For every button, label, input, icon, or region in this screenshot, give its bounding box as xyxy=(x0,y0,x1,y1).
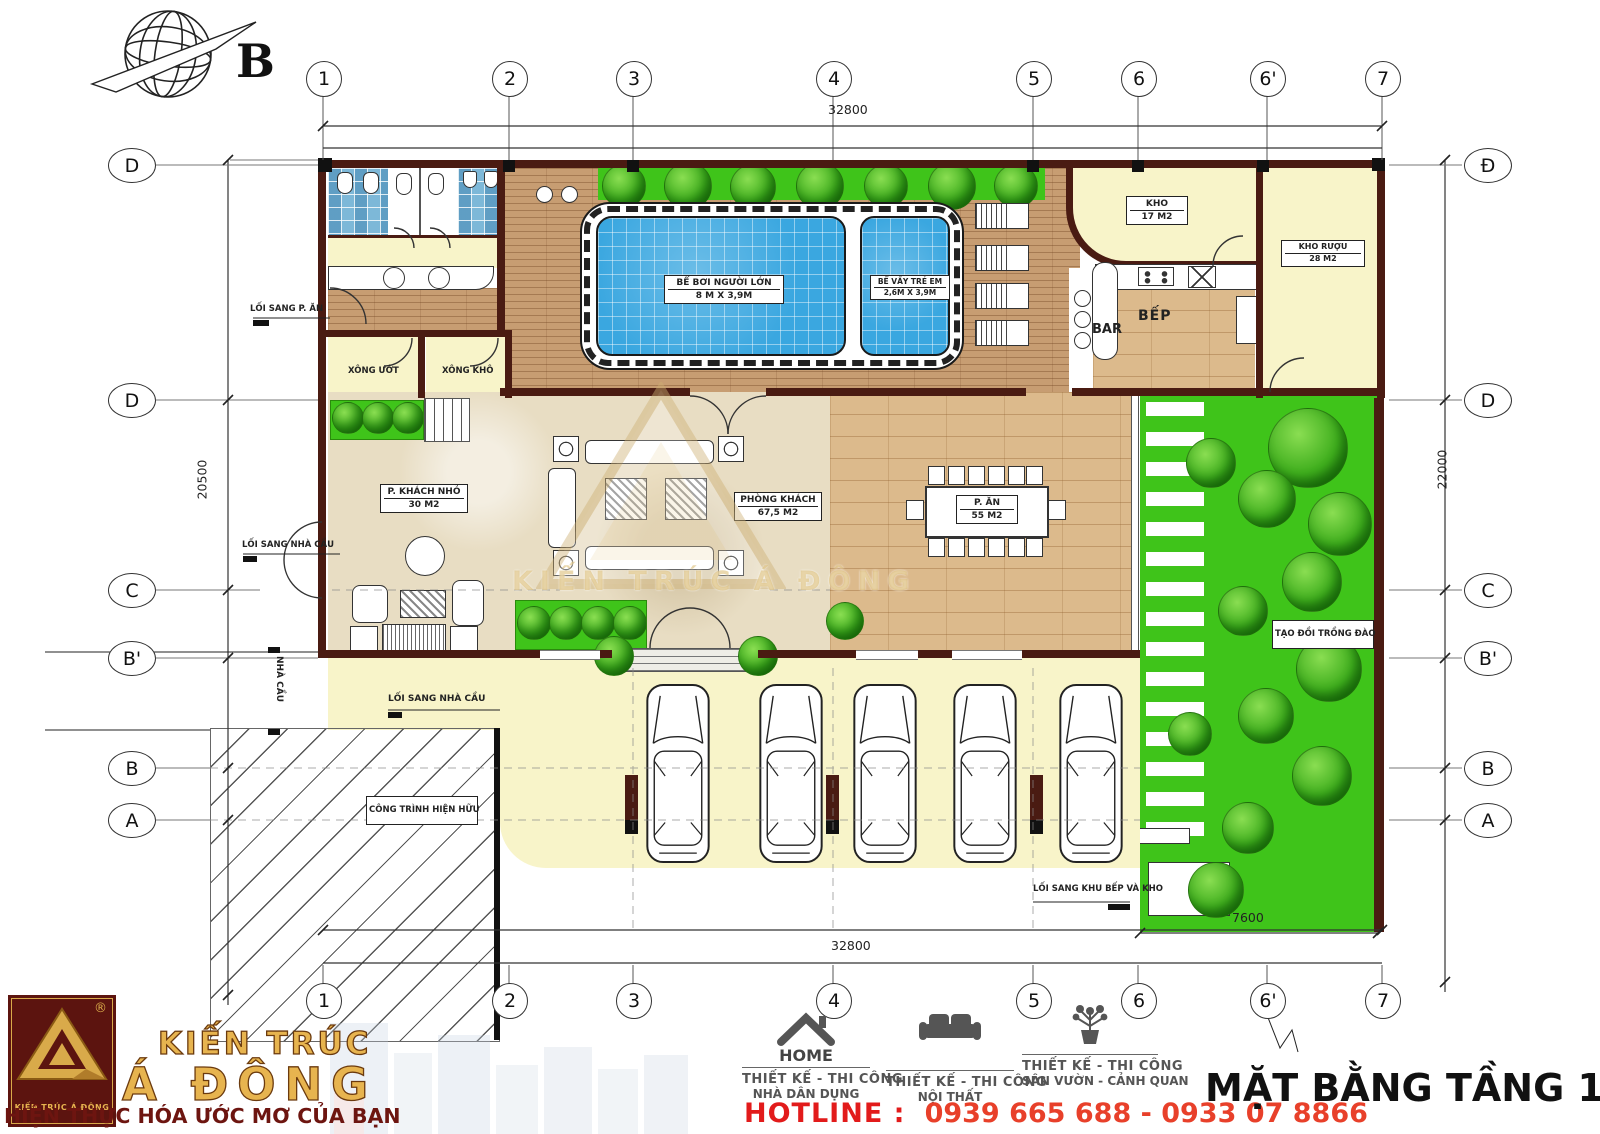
dining-chair xyxy=(906,500,924,520)
stairs xyxy=(424,398,470,442)
label-size: 55 M2 xyxy=(960,509,1014,522)
label-bep: BẾP xyxy=(1138,308,1172,324)
sun-lounger xyxy=(975,320,1029,346)
wc-stall-divider xyxy=(419,168,421,238)
floor-plan-canvas: BỂ BƠI NGƯỜI LỚN 8 M X 3,9M BỂ VẦY TRẺ E… xyxy=(0,0,1600,1134)
plant-icon xyxy=(1067,1002,1113,1048)
car-top-view xyxy=(1058,682,1124,865)
toilet-icon xyxy=(337,172,353,194)
dim-bottom-32800: 32800 xyxy=(828,938,874,953)
brand-slogan: HIỆN THỰC HÓA ƯỚC MƠ CỦA BẠN xyxy=(4,1104,401,1128)
label-kids-pool: BỂ VẦY TRẺ EM 2,6M X 3,9M xyxy=(870,275,950,300)
dining-chair xyxy=(1048,500,1066,520)
stove-icon xyxy=(1138,267,1174,286)
grid-col-7-bottom: 7 xyxy=(1365,983,1401,1019)
sink-icon xyxy=(428,267,450,289)
dining-chair xyxy=(1008,538,1025,557)
grid-row-Bp-left: B' xyxy=(108,641,156,676)
column-stub xyxy=(1257,160,1269,172)
window xyxy=(540,650,600,660)
car-top-view xyxy=(852,682,918,865)
label-text: BỂ BƠI NGƯỜI LỚN xyxy=(668,277,780,289)
brand-triangle-icon xyxy=(12,1003,112,1091)
car-top-view xyxy=(758,682,824,865)
armchair xyxy=(452,580,484,626)
column-stub xyxy=(627,160,639,172)
bar-stool xyxy=(1074,332,1091,349)
car-icon xyxy=(645,682,711,865)
service-interior: THIẾT KẾ - THI CÔNG NỘI THẤT xyxy=(886,1008,1014,1104)
bar-stool xyxy=(1074,290,1091,307)
planter-bush xyxy=(332,402,364,434)
dining-south-bush xyxy=(826,602,864,640)
dining-chair xyxy=(968,538,985,557)
service-divider xyxy=(742,1067,870,1068)
wall-wc-east xyxy=(497,168,505,332)
label-kho: KHO 17 M2 xyxy=(1126,196,1188,225)
garden-tree xyxy=(1218,586,1268,636)
wall-deck-living-2 xyxy=(766,388,1026,396)
parking-pillar xyxy=(1030,775,1043,823)
grid-col-6p-bottom: 6' xyxy=(1250,983,1286,1019)
dim-top-32800: 32800 xyxy=(828,102,868,117)
wall-wc-vanity xyxy=(328,235,500,238)
wall-garden-east xyxy=(1374,398,1384,932)
south-planter-bush xyxy=(549,606,583,640)
label-size: 17 M2 xyxy=(1130,210,1184,223)
grid-col-3-top: 3 xyxy=(616,61,652,97)
wall-deck-living-3 xyxy=(1072,388,1384,396)
north-letter: B xyxy=(236,34,275,88)
toilet-icon xyxy=(363,172,379,194)
dining-chair xyxy=(1008,466,1025,485)
label-loi-sang-nha-cau-bottom: LỐI SANG NHÀ CẦU xyxy=(388,694,485,704)
window xyxy=(952,650,1022,660)
service-divider xyxy=(1022,1054,1158,1055)
column-stub xyxy=(1132,160,1144,172)
dining-chair xyxy=(928,466,945,485)
garden-tree xyxy=(1292,746,1352,806)
grid-row-D2-right: D xyxy=(1464,383,1512,418)
sun-lounger xyxy=(975,203,1029,229)
label-size: 8 M X 3,9M xyxy=(668,289,780,302)
parking-pillar-base xyxy=(826,820,839,834)
armchair xyxy=(352,585,388,623)
sun-lounger xyxy=(975,245,1029,271)
column-stub xyxy=(318,158,332,172)
label-text: P. KHÁCH NHỎ xyxy=(384,486,464,498)
grid-col-6-top: 6 xyxy=(1121,61,1157,97)
round-table xyxy=(405,536,445,576)
service-residential: HOME THIẾT KẾ - THI CÔNG NHÀ DÂN DỤNG xyxy=(742,1008,870,1101)
kitchen-sink-icon xyxy=(1188,266,1216,288)
hotline-label: HOTLINE : xyxy=(744,1098,905,1129)
service-title xyxy=(886,1052,1014,1068)
vanity-counter xyxy=(328,266,494,290)
label-text: TẠO ĐỒI TRỒNG ĐÀO xyxy=(1275,629,1371,640)
grid-col-6p-top: 6' xyxy=(1250,61,1286,97)
label-xong-kho: XÔNG KHÔ xyxy=(442,366,493,376)
label-text: KHO xyxy=(1130,198,1184,210)
grid-row-Bp-right: B' xyxy=(1464,641,1512,676)
grid-col-7-top: 7 xyxy=(1365,61,1401,97)
label-nha-cau: NHÀ CẦU xyxy=(274,656,284,728)
service-line1: THIẾT KẾ - THI CÔNG xyxy=(886,1075,1014,1090)
dining-chair xyxy=(1026,466,1043,485)
wc-vanity-floor xyxy=(328,238,505,268)
dining-chair xyxy=(948,538,965,557)
dining-east-window-wall xyxy=(1131,396,1139,650)
label-xong-uot: XÔNG ƯỚT xyxy=(348,366,399,376)
parking-pillar xyxy=(625,775,638,823)
wall-sauna-divider xyxy=(418,337,425,398)
grid-col-2-top: 2 xyxy=(492,61,528,97)
service-title: HOME xyxy=(742,1046,870,1065)
grid-col-5-top: 5 xyxy=(1016,61,1052,97)
garden-tree xyxy=(1282,552,1342,612)
car-top-view xyxy=(952,682,1018,865)
car-top-view xyxy=(645,682,711,865)
grid-row-A-left: A xyxy=(108,803,156,838)
south-planter-bush xyxy=(613,606,647,640)
house-icon xyxy=(775,1008,837,1048)
service-landscape: THIẾT KẾ - THI CÔNG SÂN VƯỜN - CẢNH QUAN xyxy=(1022,1002,1158,1088)
dim-garden-7600: 7600 xyxy=(1232,910,1264,925)
south-planter-bush xyxy=(517,606,551,640)
column-stub xyxy=(1372,158,1385,171)
outdoor-shower xyxy=(536,186,553,203)
label-text: P. ĂN xyxy=(960,497,1014,509)
label-cong-trinh: CÔNG TRÌNH HIỆN HỮU xyxy=(366,796,478,825)
watermark-text: KIẾN TRÚC Á ĐÔNG xyxy=(512,566,916,597)
toilet-icon xyxy=(428,173,444,195)
wall-sauna-top xyxy=(326,330,512,337)
dining-chair xyxy=(948,466,965,485)
grid-row-D1-left: D xyxy=(108,148,156,183)
garden-tree xyxy=(1238,470,1296,528)
grid-row-D1-right: Đ xyxy=(1464,148,1512,183)
label-text: BỂ VẦY TRẺ EM xyxy=(874,277,946,287)
sofa-icon xyxy=(917,1008,983,1048)
label-text: CÔNG TRÌNH HIỆN HỮU xyxy=(369,805,475,816)
brand-line1: KIẾN TRÚC xyxy=(158,1026,371,1062)
garden-tree xyxy=(1308,492,1372,556)
label-size: 28 M2 xyxy=(1285,253,1361,265)
label-bar: BAR xyxy=(1092,322,1122,337)
toilet-icon xyxy=(396,173,412,195)
bar-stool xyxy=(1074,311,1091,328)
kho-ruou-floor xyxy=(1263,168,1377,398)
service-divider xyxy=(886,1070,1014,1071)
grid-col-1-top: 1 xyxy=(306,61,342,97)
existing-building-area xyxy=(210,728,500,1042)
column-stub xyxy=(1027,160,1039,172)
garden-tree xyxy=(1186,438,1236,488)
dim-left-20500: 20500 xyxy=(195,450,210,510)
south-planter-bush xyxy=(581,606,615,640)
dining-chair xyxy=(988,538,1005,557)
wall-south-living-2 xyxy=(758,650,1140,658)
label-tao-doi: TẠO ĐỒI TRỒNG ĐÀO xyxy=(1272,620,1374,649)
planter-bush xyxy=(362,402,394,434)
garden-slab xyxy=(1136,828,1190,844)
label-loi-sang-p-an: LỐI SANG P. ĂN xyxy=(250,304,323,314)
garden-tree xyxy=(1168,712,1212,756)
service-line1: THIẾT KẾ - THI CÔNG xyxy=(742,1072,870,1087)
bar-counter xyxy=(1092,262,1118,360)
watermark-logo xyxy=(536,382,786,592)
label-loi-sang-khu-bep: LỐI SANG KHU BẾP VÀ KHO xyxy=(1033,884,1163,894)
outdoor-shower xyxy=(561,186,578,203)
deck-corridor-left xyxy=(328,288,500,332)
urinal-icon xyxy=(463,171,477,188)
label-size: 30 M2 xyxy=(384,498,464,511)
parking-pillar xyxy=(826,775,839,823)
grid-row-C-right: C xyxy=(1464,573,1512,608)
wall-north xyxy=(318,160,1384,168)
kitchen-corridor xyxy=(1069,268,1093,392)
grid-row-B-left: B xyxy=(108,751,156,786)
parking-pillar-base xyxy=(1030,820,1043,834)
grid-row-A-right: A xyxy=(1464,803,1512,838)
grid-col-4-top: 4 xyxy=(816,61,852,97)
sink-icon xyxy=(383,267,405,289)
parking-pillar-base xyxy=(625,820,638,834)
planter-bush xyxy=(392,402,424,434)
label-size: 2,6M X 3,9M xyxy=(874,287,946,298)
label-loi-sang-nha-cau-top: LỐI SANG NHÀ CẦU xyxy=(242,540,334,550)
label-kho-ruou: KHO RƯỢU 28 M2 xyxy=(1281,240,1365,267)
wall-kho-ruou-west xyxy=(1256,168,1263,398)
grid-row-D2-left: D xyxy=(108,383,156,418)
label-p-khach-nho: P. KHÁCH NHỎ 30 M2 xyxy=(380,484,468,513)
dining-chair xyxy=(1026,538,1043,557)
label-main-pool: BỂ BƠI NGƯỜI LỚN 8 M X 3,9M xyxy=(664,275,784,304)
garden-tree xyxy=(1222,802,1274,854)
kitchen-counter xyxy=(1095,264,1257,290)
urinal-icon xyxy=(484,171,498,188)
label-p-an: P. ĂN 55 M2 xyxy=(956,495,1018,524)
grid-row-B-right: B xyxy=(1464,751,1512,786)
brand-reg-mark: ® xyxy=(94,1001,107,1016)
garden-tree xyxy=(1238,688,1294,744)
dining-chair xyxy=(968,466,985,485)
grid-row-C-left: C xyxy=(108,573,156,608)
dining-chair xyxy=(988,466,1005,485)
wall-west xyxy=(318,160,326,658)
label-text: KHO RƯỢU xyxy=(1285,242,1361,253)
wall-east xyxy=(1377,160,1385,398)
wall-sauna-east xyxy=(505,330,512,398)
service-line1: THIẾT KẾ - THI CÔNG xyxy=(1022,1059,1158,1074)
sun-lounger xyxy=(975,283,1029,309)
dim-right-22000: 22000 xyxy=(1435,440,1450,500)
dining-chair xyxy=(928,538,945,557)
rug xyxy=(400,590,446,618)
window xyxy=(856,650,918,660)
column-stub xyxy=(503,160,515,172)
plan-title: MẶT BẰNG TẦNG 1 xyxy=(1205,1066,1600,1110)
service-line2: SÂN VƯỜN - CẢNH QUAN xyxy=(1022,1074,1158,1088)
